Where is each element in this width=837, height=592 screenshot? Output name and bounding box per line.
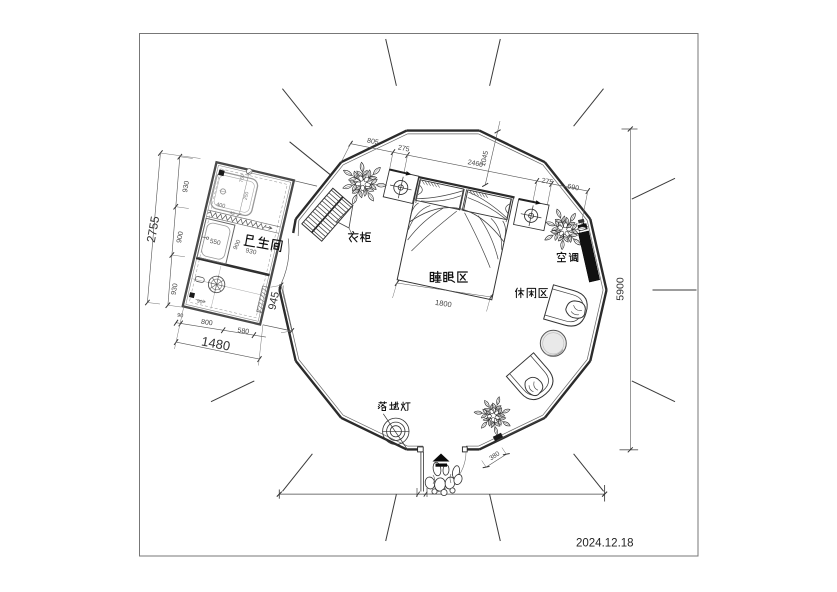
svg-text:90: 90 xyxy=(177,313,184,320)
svg-text:2024.12.18: 2024.12.18 xyxy=(576,538,634,550)
svg-text:5900: 5900 xyxy=(615,277,627,301)
